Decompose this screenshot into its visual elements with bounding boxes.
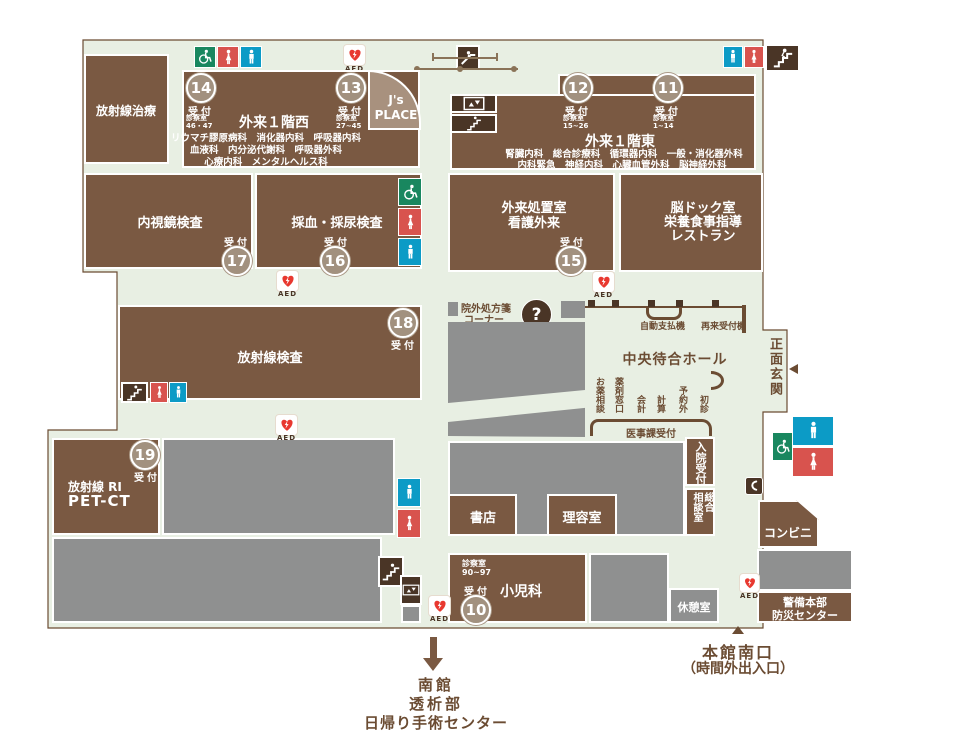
service-area-block (401, 605, 421, 623)
wheelchair-icon (398, 178, 422, 206)
annex-arrow-head (423, 658, 443, 671)
reception-19-label: 受付 (134, 469, 160, 484)
admission-label: 入院受付 (692, 441, 708, 485)
reception-13-rooms: 27~45 (336, 122, 361, 130)
south-exit-label-2: （時間外出入口） (682, 658, 794, 678)
wheelchair-icon (194, 46, 216, 68)
counter-shape (448, 302, 458, 316)
blood-urine-label: 採血・採尿検査 (291, 212, 382, 231)
pediatrics-label: 小児科 (500, 581, 542, 601)
security-label-2: 防災センター (772, 607, 838, 623)
reception-14-rooms: 46・47 (186, 122, 212, 130)
aed-icon (343, 44, 366, 66)
aed-label: AED (430, 615, 449, 623)
counter-label-pharmacy: 薬剤窓口 (612, 377, 625, 413)
machine-icon (588, 300, 595, 307)
annex-label-1: 南館 (418, 674, 454, 695)
aed-icon (592, 271, 615, 293)
aed-label: AED (594, 291, 613, 299)
bookstore-label: 書店 (470, 507, 496, 526)
aed-label: AED (740, 592, 759, 600)
women-toilet-icon (744, 46, 764, 68)
convenience-label: コンビニ (764, 524, 812, 541)
js-place-label-2: PLACE (375, 108, 418, 122)
reception-badge-10: 10 (461, 595, 491, 625)
medical-affairs-label: 医事課受付 (626, 429, 676, 440)
information-counter-block (448, 322, 585, 403)
reception-badge-14: 14 (186, 73, 216, 103)
counter-label-first-visit: 初診 (697, 395, 710, 413)
counter-shape (561, 301, 585, 318)
payment-machines-label: 自動支払機 (640, 319, 685, 332)
men-toilet-icon (169, 382, 187, 403)
medical-affairs-counter: 医事課受付 (590, 419, 712, 436)
endoscopy-label: 内視鏡検査 (137, 212, 202, 231)
reception-badge-11: 11 (653, 73, 683, 103)
elevator-icon (450, 94, 497, 113)
ri-petct-label-2: PET-CT (68, 492, 131, 510)
machine-icon (612, 300, 619, 307)
consultation-label-left: 相談室 (689, 492, 704, 522)
treatment-label-2: 看護外来 (508, 212, 560, 231)
rest-room-label: 休憩室 (678, 599, 711, 615)
aed-icon (275, 414, 298, 436)
radiology-label: 放射線検査 (237, 347, 302, 366)
machine-icon (676, 300, 683, 307)
outpatient-east-depts-2: 内科緊急 神経内科 心臓血管外科 脳神経外科 (517, 157, 726, 171)
pediatrics-rooms: 90~97 (462, 569, 491, 577)
aed-label: AED (277, 434, 296, 442)
stairs-icon (765, 44, 800, 72)
room-radiation-therapy-label: 放射線治療 (96, 102, 156, 119)
barber-label: 理容室 (562, 507, 601, 526)
phone-icon (745, 477, 763, 495)
reception-badge-18: 18 (388, 308, 418, 338)
brain-dock-label-3: レストラン (670, 225, 735, 244)
counter-label-cashier: 会計 (634, 395, 647, 413)
wall-segment (742, 305, 746, 333)
reception-badge-16: 16 (320, 246, 350, 276)
pediatrics-rooms-label: 診察室 (462, 560, 486, 568)
entrance-arrow (789, 364, 798, 374)
women-toilet-icon (217, 46, 239, 68)
service-area-block (52, 537, 382, 623)
aed-icon (739, 573, 760, 593)
service-area-block (162, 438, 395, 535)
south-exit-arrow (732, 626, 744, 634)
escalator-rail-tick-right (496, 53, 498, 61)
wheelchair-icon (772, 432, 793, 461)
floor-map: 放射線治療 AED 14 受付 診察室 46・47 13 受付 診察室 27~4… (0, 0, 971, 753)
aed-label: AED (278, 290, 297, 298)
elevator-icon (400, 575, 422, 605)
annex-label-2: 透析部 (409, 693, 463, 714)
main-entrance-label: 正面玄関 (765, 337, 784, 397)
reception-12-rooms: 15~26 (563, 122, 588, 130)
counter-label-calculation: 計算 (654, 395, 667, 413)
escalator-rail-lower (415, 68, 518, 70)
men-toilet-icon (397, 478, 421, 507)
annex-arrow-stem (430, 637, 437, 658)
escalator-rail-dot (511, 66, 517, 72)
reception-13-rooms-label: 診察室 (336, 114, 357, 122)
machine-icon (712, 300, 719, 307)
men-toilet-icon (792, 416, 834, 446)
reception-badge-19: 19 (130, 440, 160, 470)
escalator-rail-dot (457, 66, 463, 72)
escalator-rail-upper (432, 57, 498, 59)
women-toilet-icon (397, 509, 421, 538)
annex-label-3: 日帰り手術センター (364, 712, 508, 733)
reception-12-rooms-label: 診察室 (563, 114, 584, 122)
service-area-block (757, 549, 853, 591)
women-toilet-icon (150, 382, 168, 403)
reception-badge-12: 12 (563, 73, 593, 103)
aed-icon (276, 270, 299, 292)
escalator-rail-tick-left (432, 53, 434, 61)
counter-label-no-appointment: 予約外 (676, 386, 689, 413)
stairs-icon (121, 382, 148, 403)
js-place-label-1: J's (388, 93, 403, 107)
reception-11-rooms: 1~14 (653, 122, 673, 130)
reception-badge-15: 15 (556, 246, 586, 276)
men-toilet-icon (240, 46, 262, 68)
aed-icon (428, 595, 451, 617)
men-toilet-icon (398, 238, 422, 266)
women-toilet-icon (398, 208, 422, 236)
reception-18-label: 受付 (391, 337, 417, 352)
reception-11-rooms-label: 診察室 (653, 114, 674, 122)
central-hall-label: 中央待合ホール (623, 349, 728, 369)
men-toilet-icon (723, 46, 743, 68)
counter-label-medicine: お薬相談 (593, 377, 606, 413)
recheckin-machine-label: 再来受付機 (701, 319, 746, 332)
outpatient-west-depts-3: 心療内科 メンタルヘルス科 (204, 154, 328, 168)
women-toilet-icon (792, 447, 834, 477)
reception-badge-13: 13 (336, 73, 366, 103)
reception-badge-17: 17 (222, 246, 252, 276)
stairs-icon (450, 114, 497, 133)
outpatient-west-title: 外来１階西 (239, 112, 309, 132)
reception-14-rooms-label: 診察室 (186, 114, 207, 122)
service-area-block (589, 553, 669, 623)
machine-icon (648, 300, 655, 307)
